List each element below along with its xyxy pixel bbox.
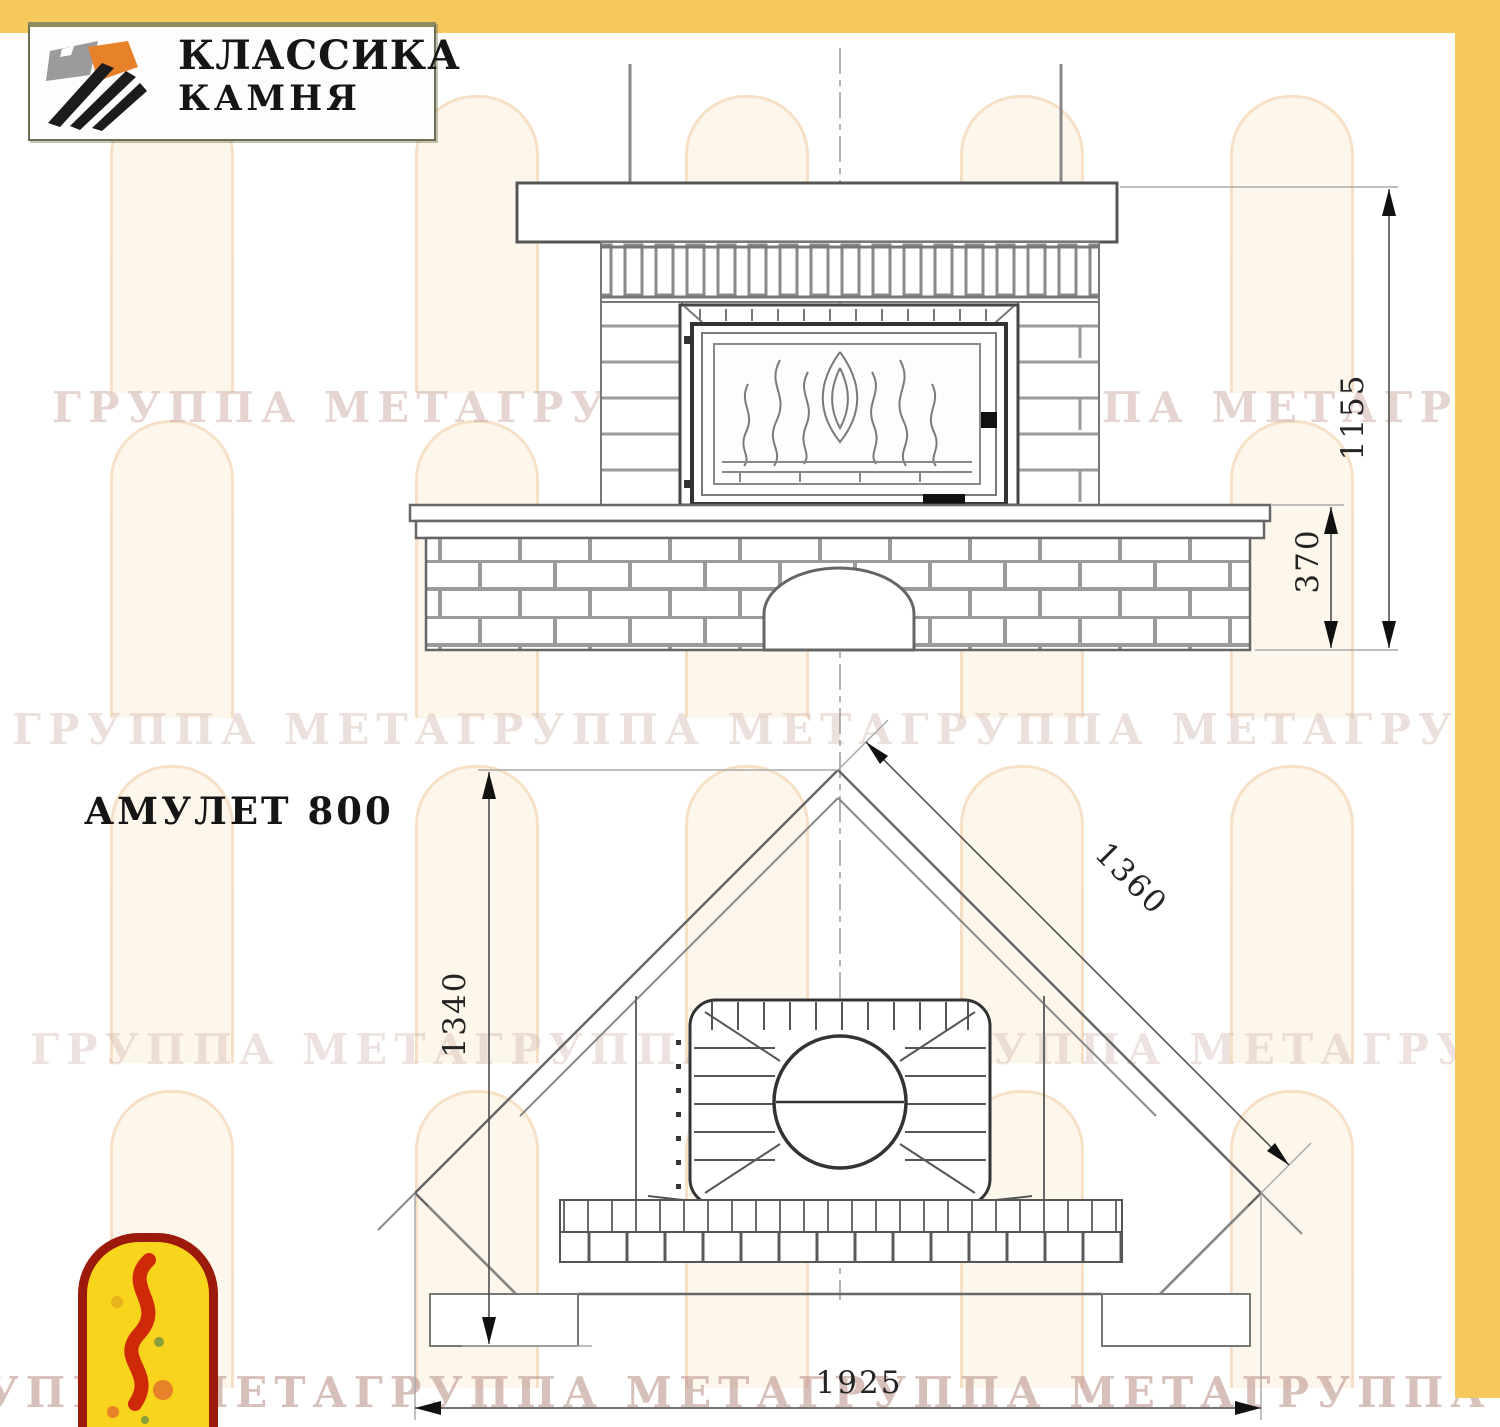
fireplace-technical-drawing [0,0,1500,1427]
plan-left-bench [430,1294,578,1346]
dimension-front-height [1382,189,1396,648]
dimension-plinth-height [1324,507,1338,648]
dim-label-plan-depth: 1340 [438,949,472,1079]
brand-name-line2: КАМНЯ [178,79,461,119]
brand-logo-box: КЛАССИКА КАМНЯ [28,22,436,141]
right-brick-column [1018,302,1099,505]
left-brick-column [601,302,682,505]
plan-view [378,720,1311,1420]
dim-label-plan-width: 1925 [794,1366,924,1400]
bench-slab-top [410,505,1270,521]
stone-stack-icon [40,35,170,135]
plan-hearth-band-fine [560,1200,1122,1232]
dim-label-plinth-height: 370 [1291,496,1325,626]
spec-sheet-page: ГРУППА МЕТАГРУППА МЕТАГРУППА МЕТАГРУППА … [0,0,1500,1427]
bench-slab-bottom [416,521,1264,538]
dentil-course [601,242,1099,302]
meta-arch-logo [78,1233,218,1427]
mantel-shelf [517,183,1117,242]
firebox-insert [680,305,1018,529]
model-title: АМУЛЕТ 800 [84,789,394,833]
dim-label-front-height: 1155 [1336,352,1370,482]
plan-right-bench [1102,1294,1250,1346]
wood-niche-arch [764,568,914,650]
brand-name: КЛАССИКА КАМНЯ [178,33,461,119]
plan-insert [648,1000,1032,1208]
door-handle [981,412,997,428]
plan-hearth-band-coarse [560,1232,1122,1262]
brand-name-line1: КЛАССИКА [178,33,461,79]
